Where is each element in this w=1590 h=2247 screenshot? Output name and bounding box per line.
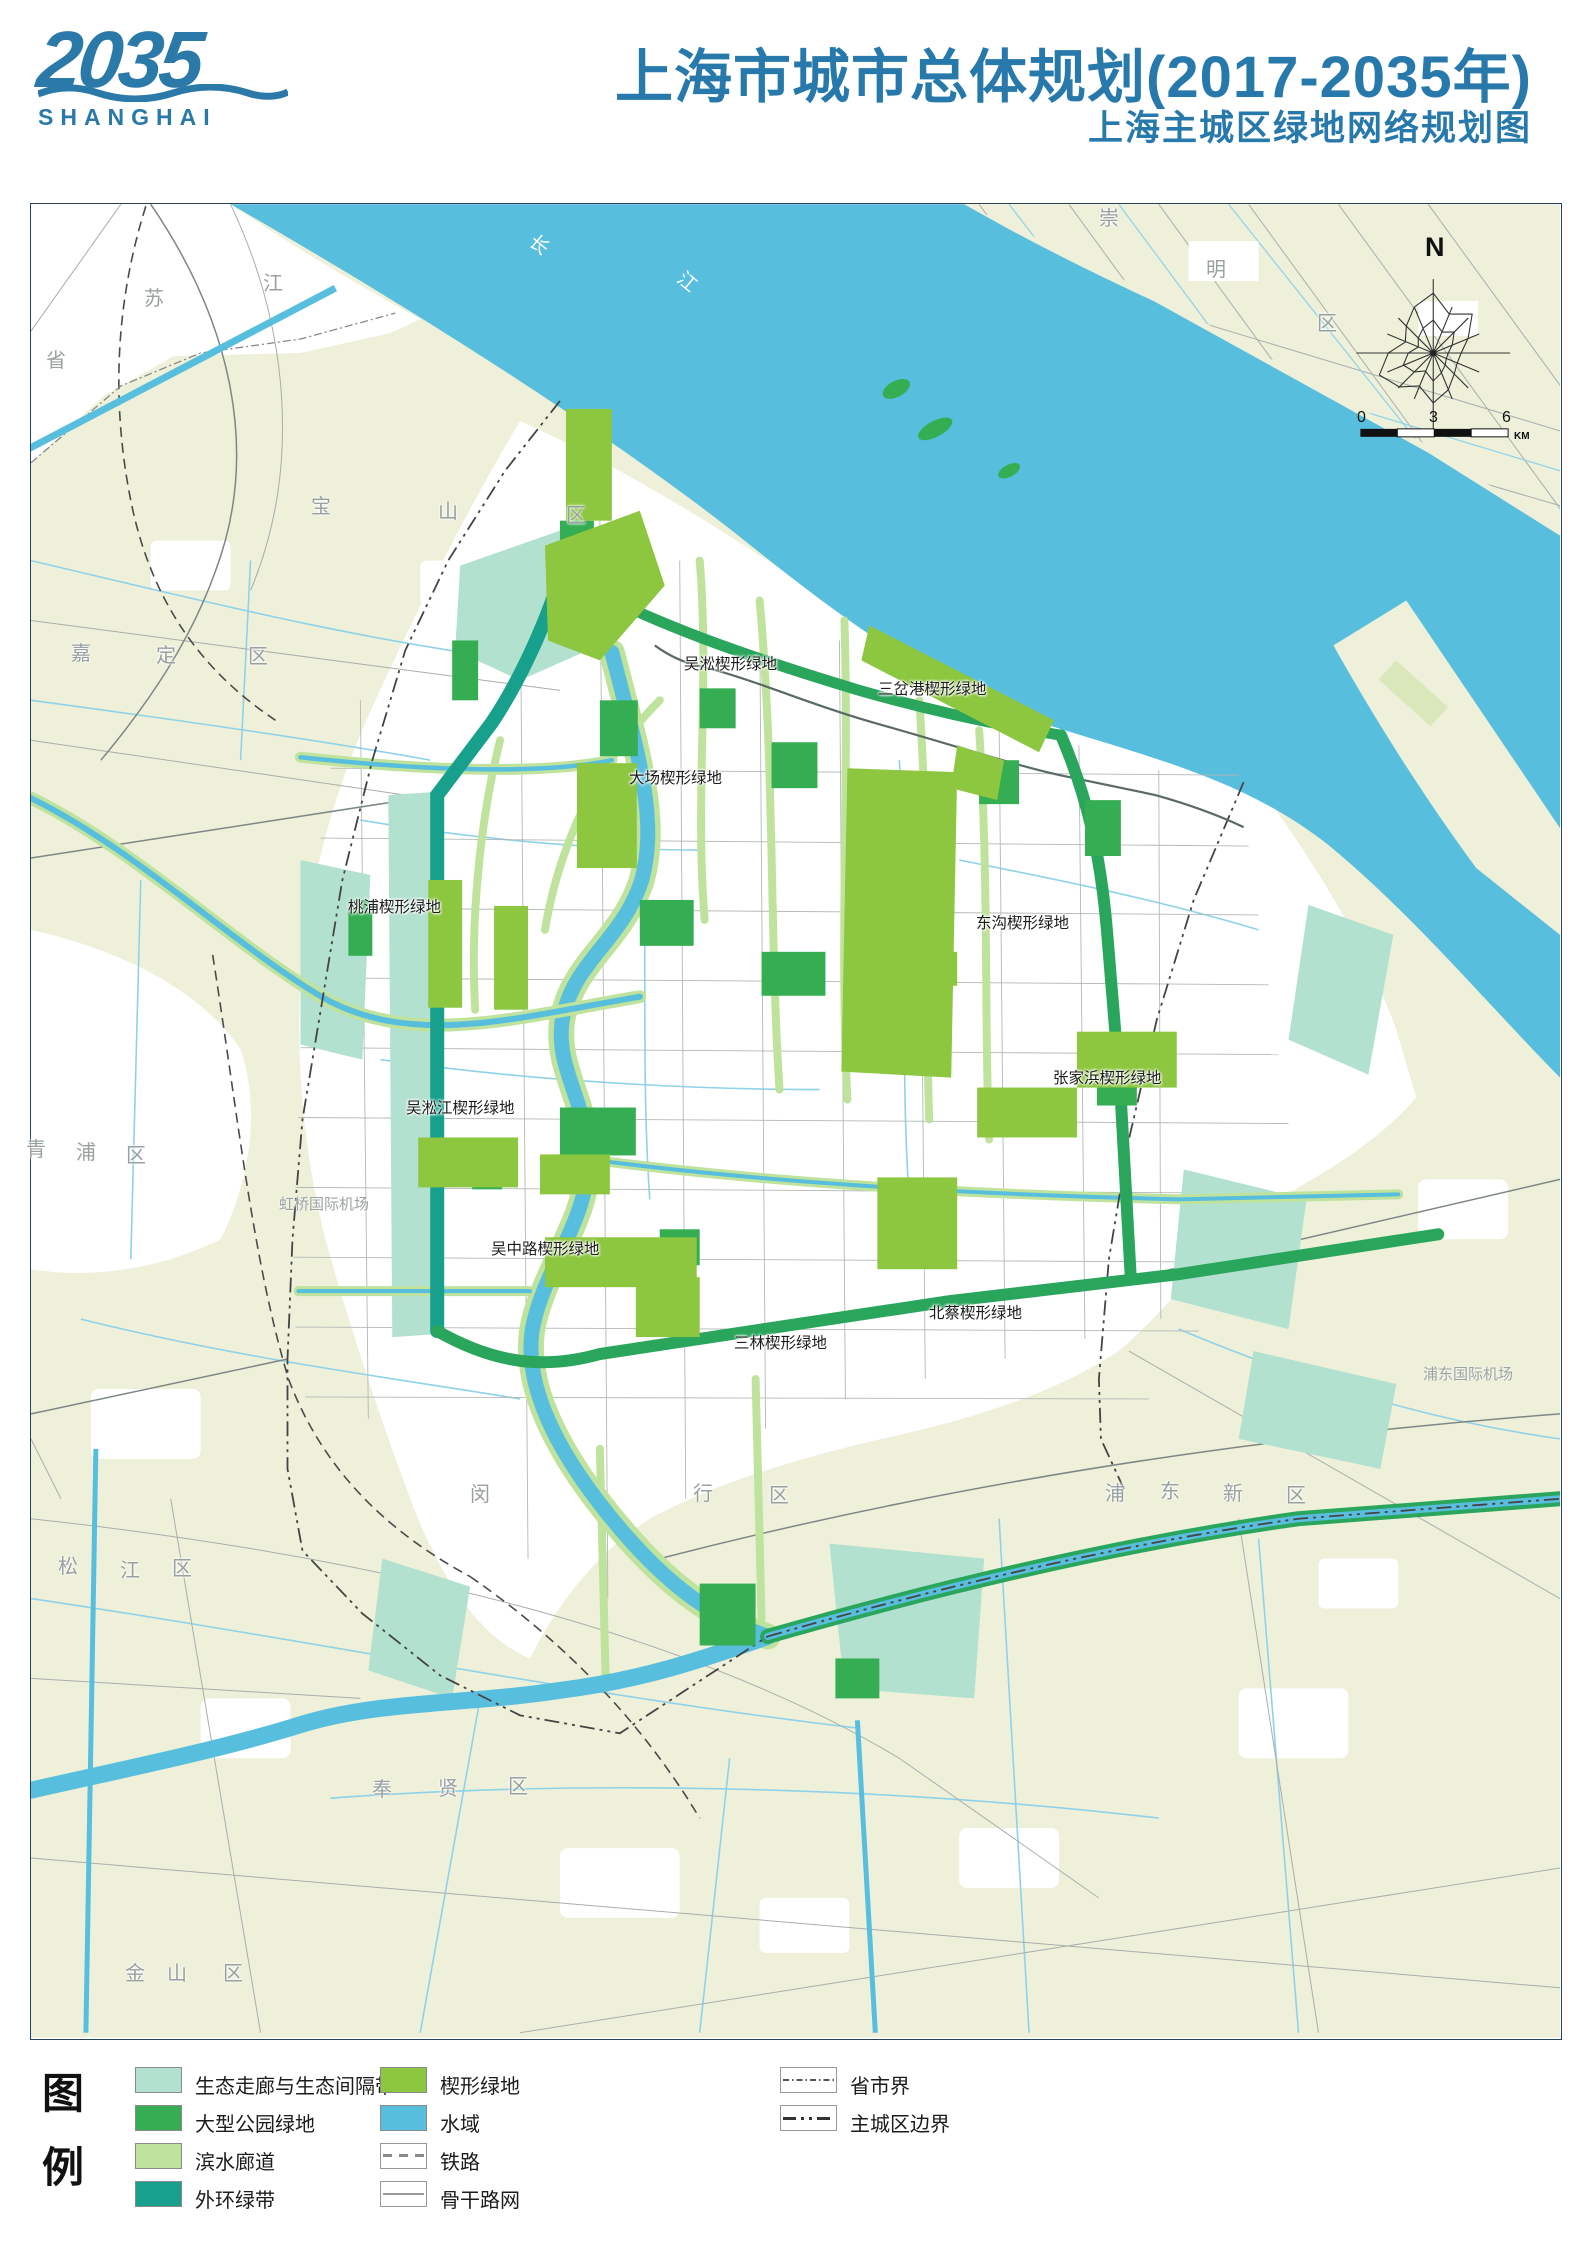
large-park-swatch (135, 2105, 182, 2131)
map-label: 省 (46, 351, 66, 371)
map-label: 山 (438, 502, 458, 522)
map-label: 区 (248, 647, 268, 667)
map-label: 区 (508, 1777, 528, 1797)
wedge-swatch (380, 2067, 427, 2093)
map-label: 东沟楔形绿地 (976, 916, 1069, 932)
map-label: 浦 (1105, 1484, 1125, 1504)
legend-label: 外环绿带 (195, 2184, 275, 2213)
map-label: 6 (1502, 410, 1511, 426)
page-subtitle: 上海主城区绿地网络规划图 (600, 100, 1532, 151)
map-label: 吴中路楔形绿地 (491, 1242, 600, 1258)
map-label: 江 (120, 1561, 140, 1581)
map-label: 大场楔形绿地 (629, 771, 722, 787)
map-label: 区 (172, 1559, 192, 1579)
map-label: 明 (1206, 260, 1226, 280)
map-label: 3 (1429, 410, 1438, 426)
map-label: 浦 (76, 1143, 96, 1163)
railway-line-swatch (380, 2143, 427, 2169)
map-label: 张家浜楔形绿地 (1053, 1071, 1162, 1087)
map-label: 江 (263, 274, 283, 294)
map-label: 区 (566, 506, 586, 526)
outer-ring-swatch (135, 2181, 182, 2207)
legend-title-bottom: 例 (42, 2134, 88, 2195)
map-label: 宝 (311, 497, 331, 517)
map-label: 区 (1317, 314, 1337, 334)
legend-label: 铁路 (440, 2146, 480, 2175)
map-label: 奉 (372, 1780, 392, 1800)
map-label: 桃浦楔形绿地 (348, 900, 441, 916)
map-label: 贤 (438, 1779, 458, 1799)
legend-title-top: 图 (42, 2060, 88, 2121)
map-label: KM (1514, 432, 1530, 442)
logo-shanghai-text: SHANGHAI (38, 104, 308, 131)
map-label: 区 (769, 1486, 789, 1506)
map-label: N (1425, 234, 1445, 261)
map-label: 金 (125, 1964, 145, 1984)
trunk-road-line-swatch (380, 2181, 427, 2207)
map-label: 青 (26, 1140, 46, 1160)
map-label: 虹桥国际机场 (279, 1197, 369, 1212)
map-label: 闵 (470, 1485, 490, 1505)
main-city-boundary-line-swatch (780, 2105, 837, 2131)
map-frame: 吴淞楔形绿地三岔港楔形绿地大场楔形绿地桃浦楔形绿地东沟楔形绿地张家浜楔形绿地吴淞… (30, 203, 1562, 2040)
page: 2035 SHANGHAI 上海市城市总体规划(2017-2035年) 上海主城… (0, 0, 1590, 2247)
eco-corridor-swatch (135, 2067, 182, 2093)
map-label: 区 (223, 1964, 243, 1984)
map-label: 三岔港楔形绿地 (878, 682, 987, 698)
province-boundary-line-swatch (780, 2067, 837, 2093)
map-label: 新 (1223, 1484, 1243, 1504)
map-label: 吴淞楔形绿地 (684, 657, 777, 673)
map-label: 嘉 (71, 644, 91, 664)
legend-label: 骨干路网 (440, 2184, 520, 2213)
legend-label: 生态走廊与生态间隔带 (195, 2070, 395, 2099)
map-label: 吴淞江楔形绿地 (406, 1101, 515, 1117)
legend-label: 楔形绿地 (440, 2070, 520, 2099)
legend: 图 例 生态走廊与生态间隔带 大型公园绿地 滨水廊道 外环绿带 楔形绿地 水域 (30, 2058, 1562, 2218)
map-label: 北蔡楔形绿地 (929, 1306, 1022, 1322)
map-label: 苏 (144, 289, 164, 309)
logo: 2035 SHANGHAI (38, 22, 308, 131)
legend-label: 省市界 (850, 2070, 910, 2099)
map-label: 东 (1160, 1482, 1180, 1502)
water-swatch (380, 2105, 427, 2131)
map-label: 区 (1286, 1486, 1306, 1506)
legend-label: 主城区边界 (850, 2108, 950, 2137)
legend-label: 大型公园绿地 (195, 2108, 315, 2137)
map-label: 浦东国际机场 (1423, 1367, 1513, 1382)
logo-year-text: 2035 (34, 22, 312, 98)
map-labels: 吴淞楔形绿地三岔港楔形绿地大场楔形绿地桃浦楔形绿地东沟楔形绿地张家浜楔形绿地吴淞… (31, 204, 1561, 2039)
map-label: 崇 (1099, 209, 1119, 229)
map-label: 江 (673, 269, 700, 296)
map-label: 定 (156, 646, 176, 666)
map-label: 山 (167, 1964, 187, 1984)
legend-label: 滨水廊道 (195, 2146, 275, 2175)
map-label: 三林楔形绿地 (734, 1336, 827, 1352)
legend-label: 水域 (440, 2108, 480, 2137)
waterfront-corridor-swatch (135, 2143, 182, 2169)
map-label: 长 (525, 232, 552, 259)
map-label: 区 (126, 1146, 146, 1166)
map-label: 行 (693, 1484, 713, 1504)
map-label: 0 (1357, 410, 1366, 426)
map-label: 松 (58, 1557, 78, 1577)
